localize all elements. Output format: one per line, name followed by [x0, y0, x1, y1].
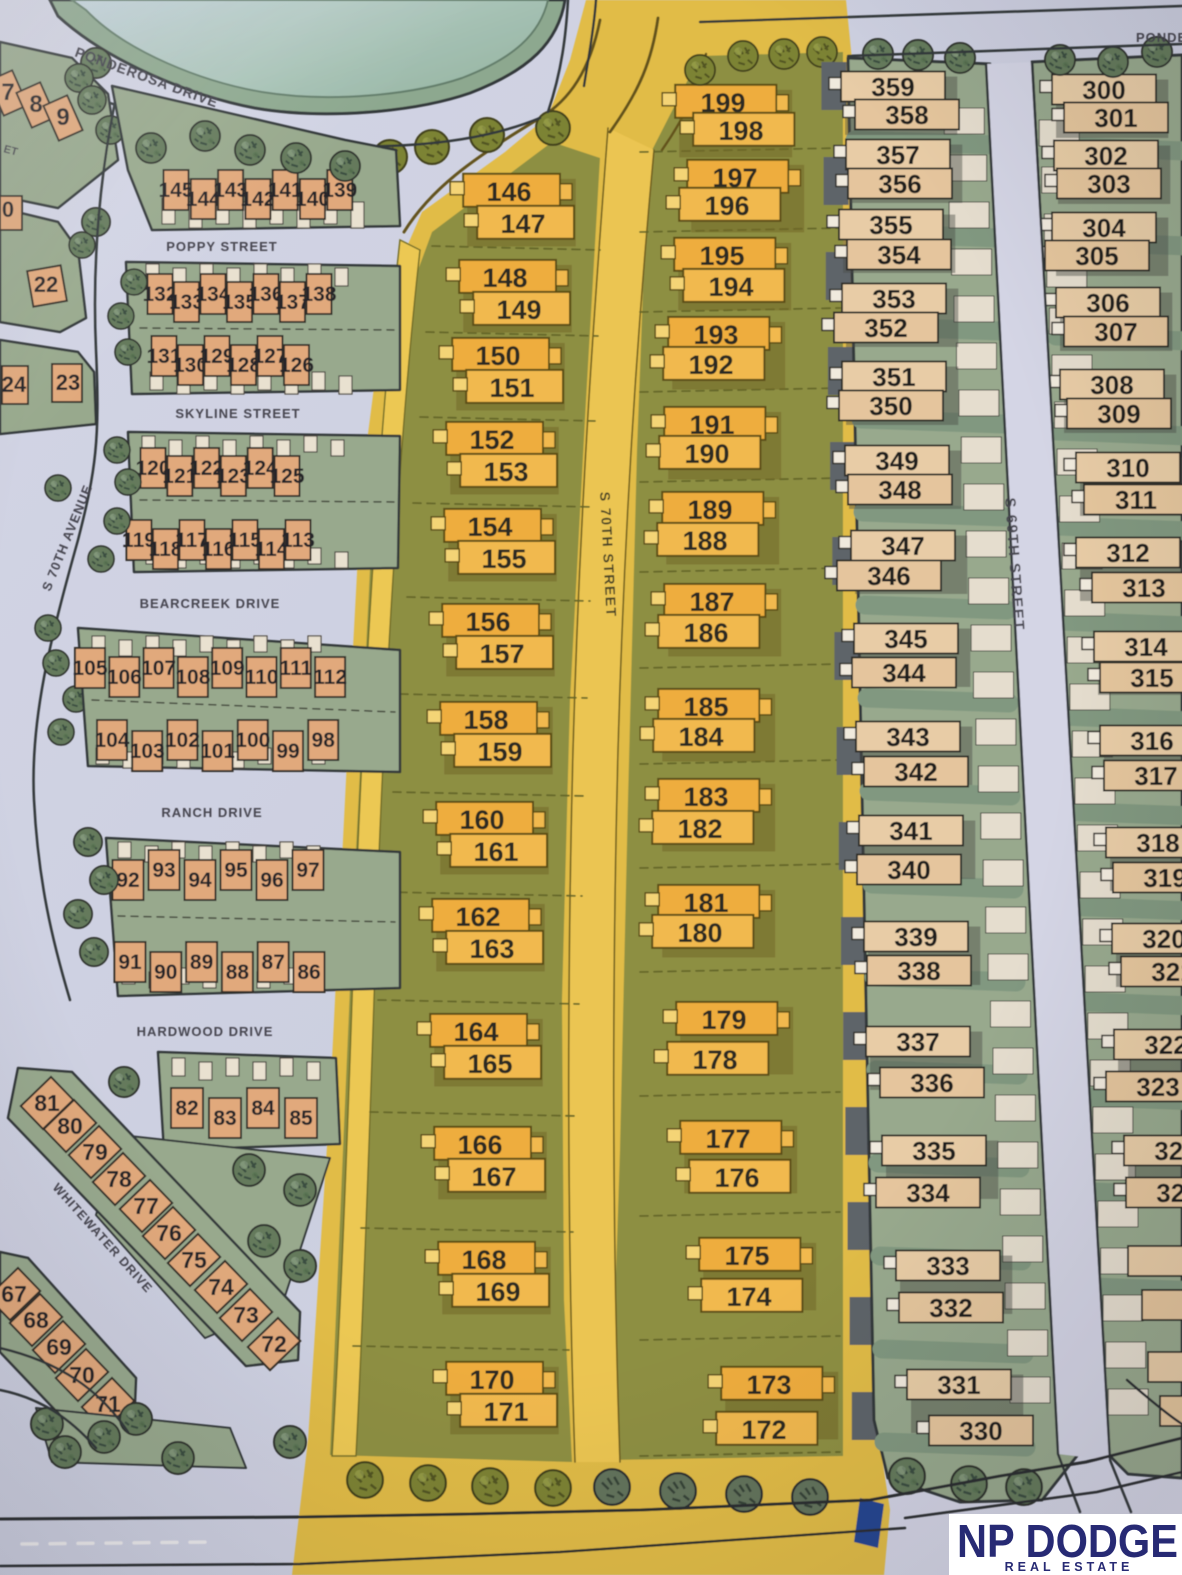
- svg-text:REAL ESTATE: REAL ESTATE: [1005, 1560, 1134, 1574]
